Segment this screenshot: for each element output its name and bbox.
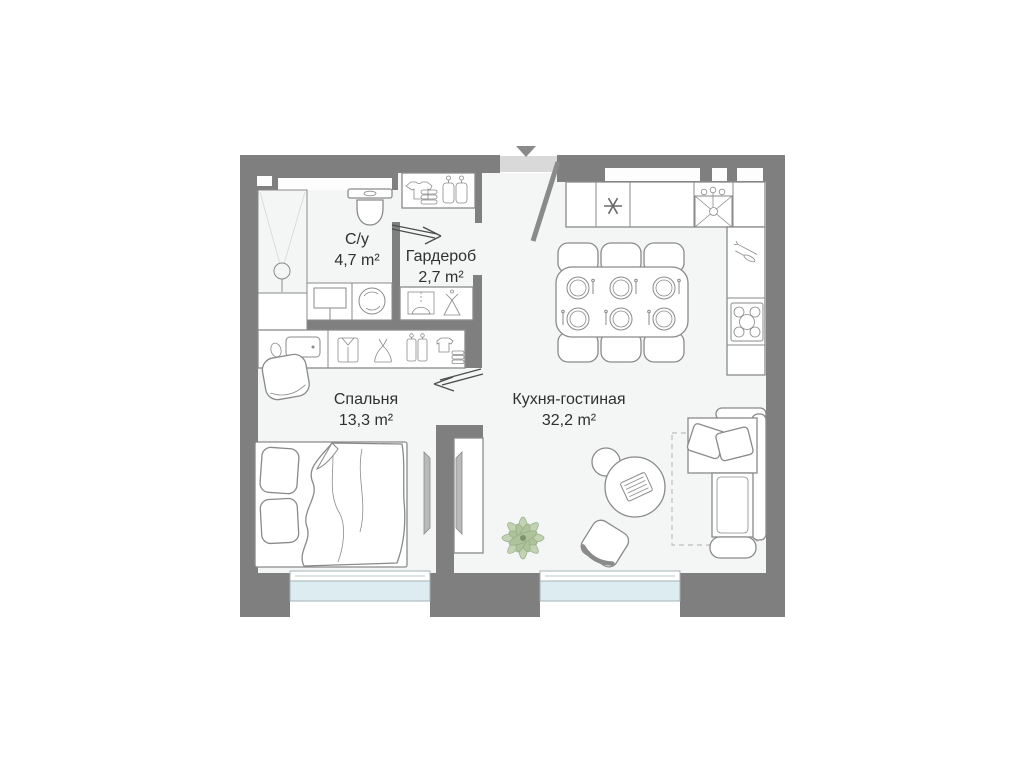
wall-pier-middle xyxy=(430,573,540,617)
blanket-icon xyxy=(302,443,405,566)
tv-icon xyxy=(456,452,462,534)
tv-cabinet xyxy=(454,438,483,553)
toilet-cistern xyxy=(348,189,392,198)
room-area-bathroom: 4,7 m² xyxy=(334,252,380,269)
washing-machine-icon xyxy=(352,283,392,320)
wall-niche xyxy=(257,176,272,186)
room-area-kitchen-living: 32,2 m² xyxy=(542,412,597,429)
wall-bedroom-partition xyxy=(436,425,454,573)
wall-bedroom-hall-block xyxy=(465,332,482,368)
pillow-icon xyxy=(259,447,299,494)
wall-niche xyxy=(737,168,763,181)
wall-niche xyxy=(605,168,700,181)
bath-bench xyxy=(258,293,307,330)
dining-set xyxy=(556,243,688,362)
wall-bathroom-wardrobe xyxy=(392,222,400,320)
bed-icon xyxy=(255,442,407,567)
floor-plan-page: С/у 4,7 m² Гардероб 2,7 m² Спальня 13,3 … xyxy=(0,0,1024,768)
kitchen-counter-right xyxy=(727,227,765,375)
wall-wardrobe-hall-top xyxy=(475,173,482,223)
toilet-bowl xyxy=(357,200,383,225)
room-label-wardrobe: Гардероб xyxy=(406,248,476,265)
wall-top-wardrobe xyxy=(398,155,500,173)
sofa-seat xyxy=(712,473,753,537)
wall-niche xyxy=(278,178,392,190)
wall-partition-cap xyxy=(436,425,483,438)
plant-icon xyxy=(502,517,544,559)
room-area-wardrobe: 2,7 m² xyxy=(418,269,464,286)
tv-icon xyxy=(424,452,430,534)
plant-leaves xyxy=(502,517,544,559)
wall-pier-left xyxy=(240,573,290,617)
sofa-armrest xyxy=(710,537,756,558)
dressing-table-knob xyxy=(312,346,315,349)
wall-wardrobe-hall-bottom xyxy=(473,275,482,320)
room-label-bathroom: С/у xyxy=(345,231,369,248)
window-living xyxy=(540,581,680,601)
room-area-bedroom: 13,3 m² xyxy=(339,412,394,429)
window-bedroom xyxy=(290,581,430,601)
wall-right xyxy=(766,182,785,573)
floor-plan: С/у 4,7 m² Гардероб 2,7 m² Спальня 13,3 … xyxy=(0,0,1024,768)
round-table-icon xyxy=(605,457,665,517)
entrance-direction-arrow-icon xyxy=(516,146,536,157)
wall-pier-right xyxy=(680,573,785,617)
wall-niche xyxy=(712,168,727,181)
room-label-kitchen-living: Кухня-гостиная xyxy=(512,391,625,408)
pillow-icon xyxy=(260,498,299,544)
entrance-threshold xyxy=(500,156,557,172)
stool-icon xyxy=(261,353,312,402)
room-label-bedroom: Спальня xyxy=(334,391,398,408)
